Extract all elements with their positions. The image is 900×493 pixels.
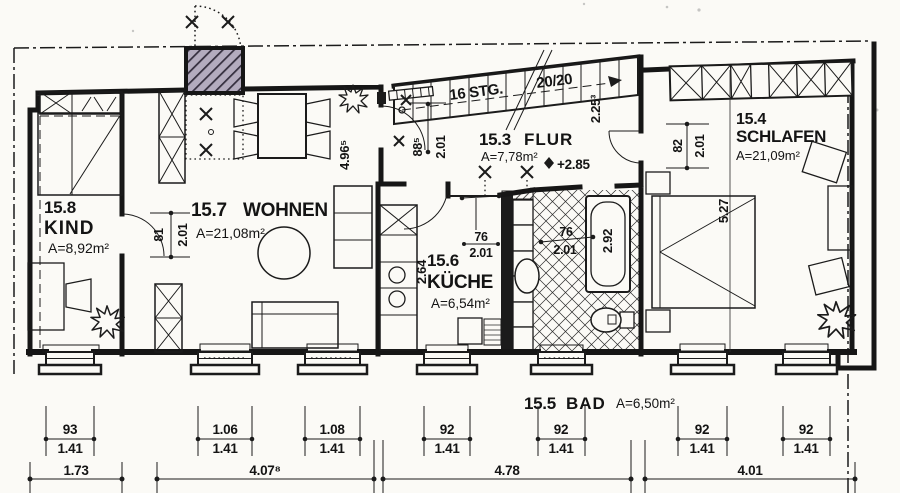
dim-width: 76 <box>559 225 573 239</box>
window-dimension: 93 1.41 <box>44 406 97 456</box>
room-label-schlafen: 15.4 SCHLAFEN A=21,09m² <box>736 111 826 163</box>
chain-dim: 4.01 <box>737 463 763 478</box>
window-dimension: 92 1.41 <box>781 406 833 456</box>
dim-width: 76 <box>474 230 488 244</box>
desk <box>28 263 64 330</box>
level-value: +2.85 <box>557 157 590 172</box>
dim-bad-tub: 2.92 <box>600 229 615 253</box>
room-number: 15.3 <box>479 130 511 149</box>
room-name: WOHNEN <box>243 200 328 221</box>
dim-bottom: 1.41 <box>434 441 460 456</box>
room-label-kueche: 15.6 KÜCHE A=6,54m² <box>427 251 493 311</box>
wall-hatch-flur <box>377 92 386 104</box>
window-dimension: 92 1.41 <box>536 406 588 456</box>
dim-top: 1.08 <box>319 422 345 437</box>
dim-height: 2.01 <box>553 243 576 257</box>
door-kueche <box>404 185 448 229</box>
schlafen-furniture <box>646 62 856 352</box>
dim-bottom: 1.41 <box>689 441 715 456</box>
dim-top: 92 <box>440 422 454 437</box>
dim-kueche-door: 76 2.01 <box>460 194 502 260</box>
room-area: A=8,92m² <box>48 240 109 256</box>
dim-bottom: 1.41 <box>212 441 238 456</box>
round-table <box>258 227 310 279</box>
window <box>531 352 592 374</box>
room-area: A=6,50m² <box>616 396 675 411</box>
dim-kueche-depth: 2.64 <box>414 259 429 284</box>
chain-dim: 4.07⁸ <box>249 463 280 478</box>
dim-bottom: 1.41 <box>548 441 574 456</box>
dim-bottom: 1.41 <box>57 441 83 456</box>
dim-kind-door: 81 2.01 <box>150 211 190 260</box>
level-marker: +2.85 <box>544 157 590 172</box>
room-name: FLUR <box>524 130 573 149</box>
plant <box>91 306 124 338</box>
room-name: BAD <box>566 394 606 413</box>
dining-table <box>258 94 306 158</box>
room-name: SCHLAFEN <box>736 127 826 146</box>
chimney <box>186 48 243 93</box>
chair-tilted <box>802 141 846 183</box>
chain-dim: 1.73 <box>63 463 89 478</box>
dim-top: 92 <box>695 422 709 437</box>
window <box>671 352 734 374</box>
dim-bottom: 1.41 <box>793 441 819 456</box>
dim-height: 2.01 <box>176 223 190 246</box>
room-area: A=21,08m² <box>196 225 265 241</box>
dim-height: 2.01 <box>693 134 707 157</box>
dim-schlafen-height: 5.27 <box>716 199 731 223</box>
kitchen-counter <box>380 205 417 350</box>
dim-top: 93 <box>63 422 78 437</box>
floor-plan-drawing: 16 STG. 20/20 +2.85 <box>0 0 900 493</box>
dim-top: 92 <box>799 422 813 437</box>
room-number: 15.7 <box>191 200 227 221</box>
nightstand <box>646 172 670 194</box>
nightstand <box>646 310 670 332</box>
room-number: 15.6 <box>427 251 459 270</box>
double-bed <box>652 196 755 308</box>
door-flur-schlafen <box>609 131 641 163</box>
window <box>39 352 101 374</box>
dining-chairs <box>234 99 330 159</box>
shelf-unit <box>334 186 372 268</box>
entry-door-swing <box>186 6 241 50</box>
radiator-bench <box>484 319 501 345</box>
bed-single <box>38 113 122 195</box>
dim-schlafen-door: 82 2.01 <box>666 122 709 171</box>
wardrobe <box>40 92 122 114</box>
window <box>776 352 837 374</box>
room-area: A=7,78m² <box>481 149 538 164</box>
room-label-kind: 15.8 KIND A=8,92m² <box>44 198 109 256</box>
kitchen-table <box>458 318 482 344</box>
dim-width: 82 <box>671 139 685 153</box>
window <box>191 352 259 374</box>
window-dimension: 1.06 1.41 <box>196 406 255 456</box>
toilet <box>591 308 634 332</box>
kind-furniture <box>28 92 124 338</box>
chain-dim: 4.78 <box>494 463 520 478</box>
window-dimension: 92 1.41 <box>676 406 730 456</box>
room-number: 15.4 <box>736 111 766 128</box>
room-name: KÜCHE <box>427 272 493 293</box>
dim-bottom: 1.41 <box>319 441 345 456</box>
room-number: 15.8 <box>44 198 76 217</box>
room-label-bad: 15.5 BAD A=6,50m² <box>524 394 675 413</box>
chair-tilted <box>809 258 849 295</box>
dim-flur-width: 2.25³ <box>588 94 603 123</box>
room-number: 15.5 <box>524 394 556 413</box>
sofa <box>252 302 338 348</box>
room-label-wohnen: 15.7 WOHNEN A=21,08m² <box>191 200 328 241</box>
dim-top: 1.06 <box>212 422 238 437</box>
dim-top: 92 <box>554 422 568 437</box>
window-dimension: 92 1.41 <box>422 406 473 456</box>
dim-width: 81 <box>152 228 166 242</box>
windows <box>39 352 837 374</box>
washbasin <box>515 259 539 293</box>
chair <box>66 279 91 312</box>
room-area: A=21,09m² <box>736 148 801 163</box>
window-dimension: 1.08 1.41 <box>303 406 363 456</box>
window <box>417 352 477 374</box>
cupboard-tall <box>159 91 185 183</box>
room-area: A=6,54m² <box>431 296 490 311</box>
shaft-wall <box>501 193 513 353</box>
window <box>298 352 367 374</box>
dim-wohnen-height: 4.96⁵ <box>337 140 352 170</box>
cupboard-low <box>155 284 182 352</box>
dim-width: 88⁵ <box>411 137 425 156</box>
dim-height: 2.01 <box>469 246 492 260</box>
wardrobe-row <box>670 62 853 101</box>
room-name: KIND <box>44 218 94 239</box>
floor-plan-scan: 16 STG. 20/20 +2.85 <box>0 0 900 493</box>
dim-height: 2.01 <box>434 135 448 158</box>
